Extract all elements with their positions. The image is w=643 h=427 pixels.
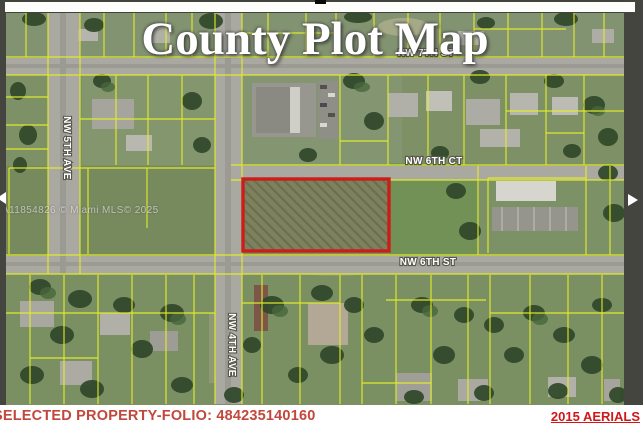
street-label-nw-7th-st: NW 7TH ST (398, 48, 455, 59)
plot-map-window: NW 7TH ST NW 6TH CT NW 6TH ST NW 5TH AVE… (0, 0, 643, 427)
right-edge-strip (624, 0, 643, 405)
mls-watermark: A11854826 © Miami MLS© 2025 (6, 205, 159, 216)
street-label-nw-6th-ct: NW 6TH CT (405, 156, 462, 167)
street-label-nw-5th-ave: NW 5TH AVE (61, 116, 72, 180)
selected-property-folio: SELECTED PROPERTY-FOLIO: 484235140160 (0, 408, 316, 424)
street-label-nw-6th-st: NW 6TH ST (400, 257, 457, 268)
next-image-arrow-icon[interactable] (628, 194, 638, 206)
aerials-link[interactable]: 2015 AERIALS (551, 409, 640, 424)
footer-bar: SELECTED PROPERTY-FOLIO: 484235140160 20… (0, 405, 643, 427)
left-edge-strip (0, 0, 6, 405)
aerial-map[interactable]: NW 7TH ST NW 6TH CT NW 6TH ST NW 5TH AVE… (6, 13, 624, 405)
selected-parcel-outline (243, 179, 389, 251)
street-label-nw-4th-ave: NW 4TH AVE (226, 313, 237, 377)
previous-image-arrow-icon[interactable] (0, 192, 6, 204)
top-center-mark (315, 0, 326, 4)
